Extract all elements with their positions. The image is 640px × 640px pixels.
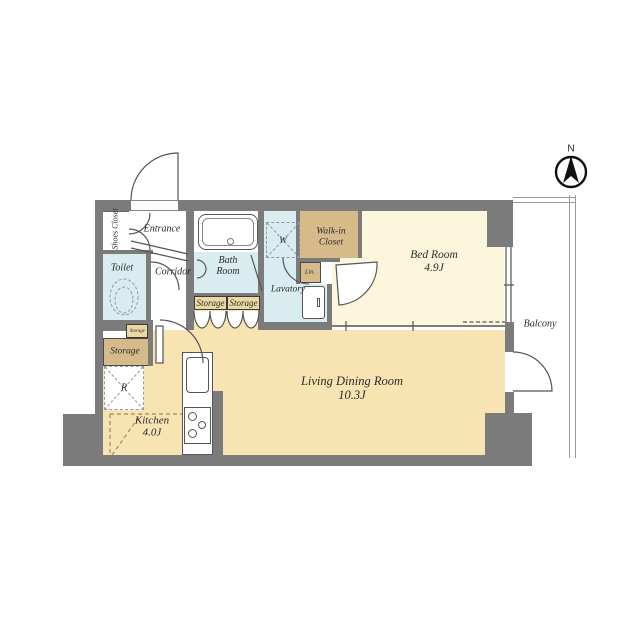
kitchen-name: Kitchen: [135, 415, 169, 427]
toilet-label: Toilet: [111, 262, 133, 273]
kitchen-label: Kitchen 4.0J: [135, 415, 169, 440]
linen-label: Lin.: [305, 268, 315, 275]
living-dining-label: Living Dining Room 10.3J: [301, 374, 403, 402]
refrigerator-label: R: [121, 382, 127, 393]
corridor-label: Corridor: [155, 266, 191, 277]
storage-left-label: Storage: [110, 347, 140, 358]
balcony-label: Balcony: [524, 318, 557, 329]
living-dining-size: 10.3J: [301, 388, 403, 402]
toilet-fixture-bowl: [110, 279, 138, 315]
bath-room-label: Bath Room: [208, 255, 248, 277]
bed-room-label: Bed Room 4.9J: [410, 249, 458, 275]
entrance-door-arc: [131, 153, 178, 200]
entrance-step-line-2: [131, 248, 188, 261]
bath-door-bump: [197, 260, 206, 278]
balcony-door-arc: [513, 352, 552, 391]
bed-room-size: 4.9J: [410, 262, 458, 275]
closet-bifold-doors: [194, 311, 259, 328]
living-dining-name: Living Dining Room: [301, 374, 403, 388]
walk-in-closet-label: Walk-in Closet: [304, 226, 358, 247]
toilet-fixture-seat: [115, 287, 133, 313]
corridor-door-leaf: [156, 326, 163, 363]
lavatory-label: Lavatory: [271, 285, 305, 296]
bedroom-window-lines: [504, 247, 514, 322]
entrance-step-line-1: [131, 241, 188, 254]
bedroom-door-leaf: [336, 262, 377, 305]
kitchen-size: 4.0J: [135, 427, 169, 439]
compass: [556, 156, 586, 187]
compass-north-label: N: [567, 143, 574, 154]
bath-sliding-door-line: [251, 255, 262, 291]
corridor-door-arc: [160, 320, 203, 363]
washer-label: W: [279, 235, 287, 245]
compass-north-arrow-icon: [563, 156, 579, 183]
bed-room-name: Bed Room: [410, 249, 458, 262]
floor-plan: Storage Storage Storage: [0, 0, 640, 640]
entrance-label: Entrance: [144, 223, 181, 234]
shoes-closet-label: Shoes Closet: [112, 208, 121, 249]
